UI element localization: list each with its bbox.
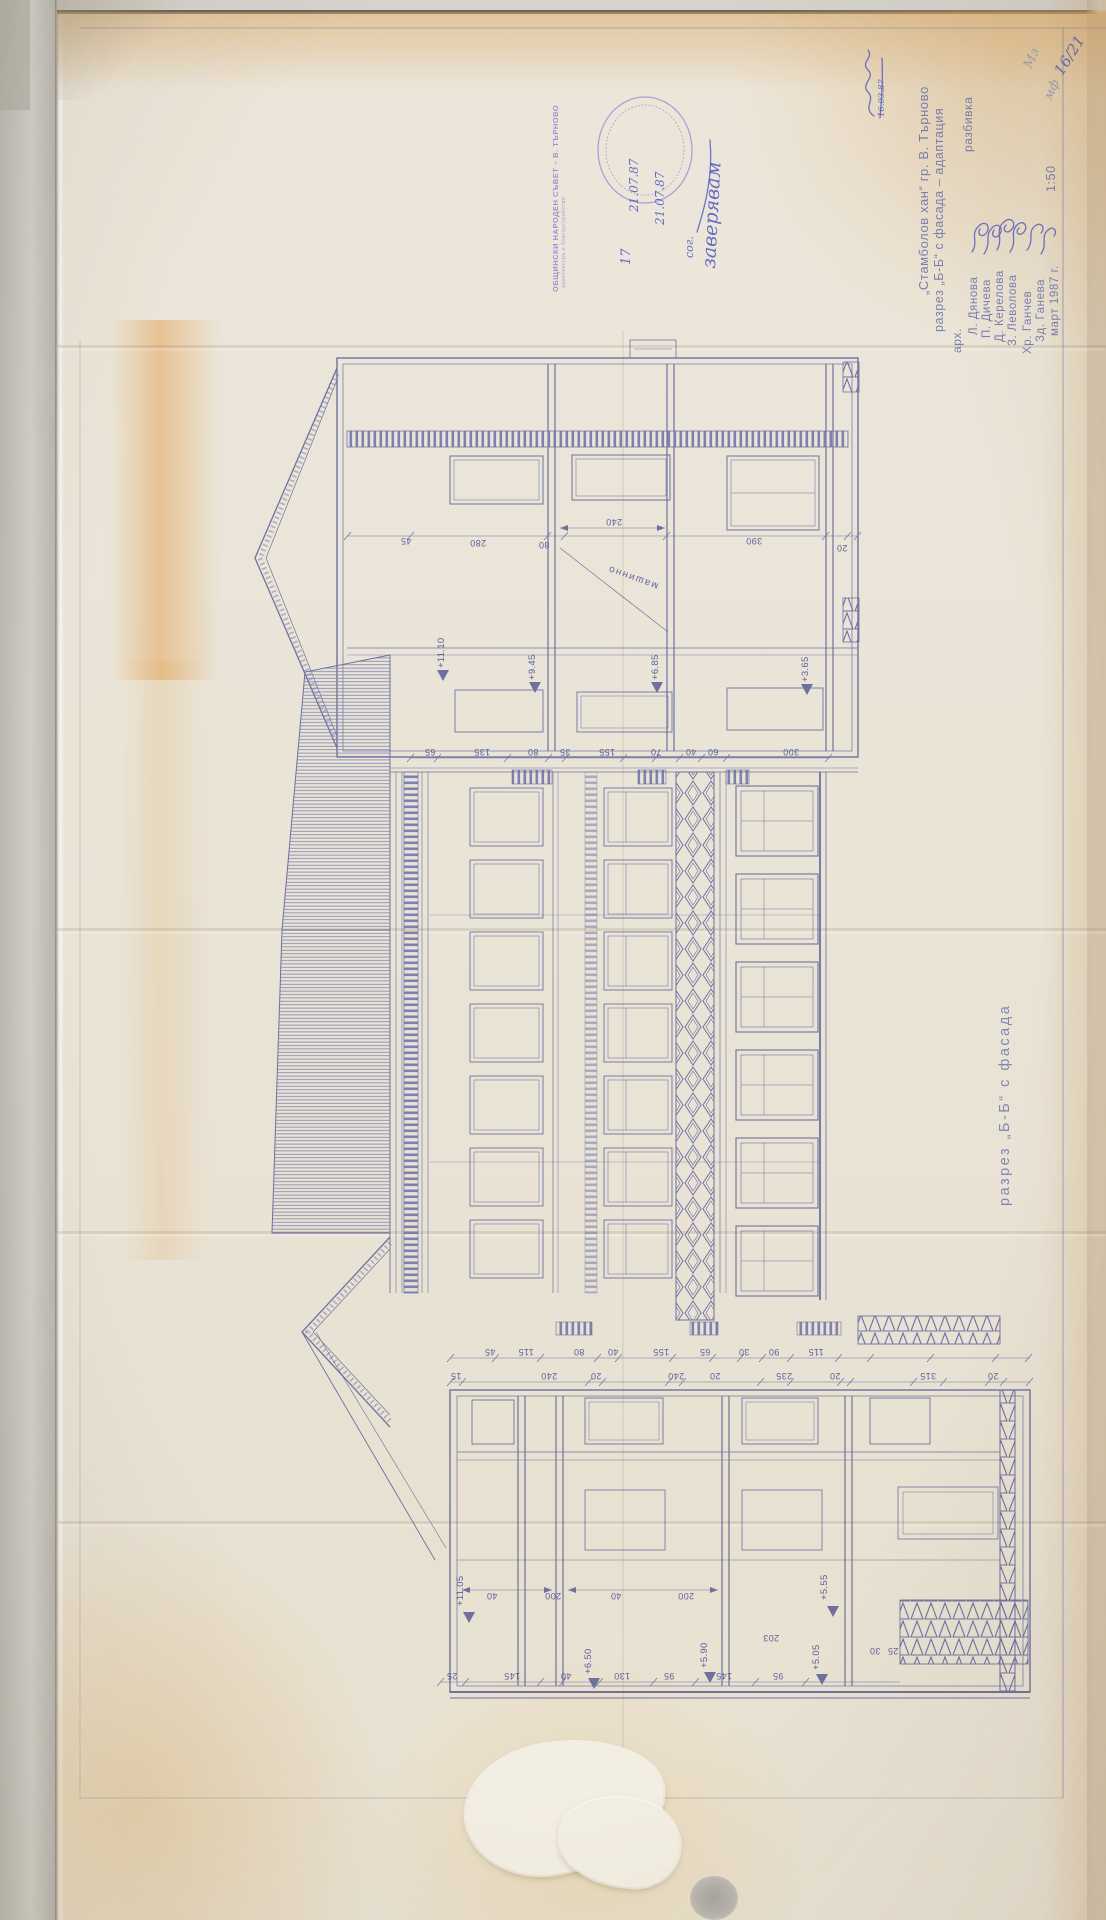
level-label: +3.65 xyxy=(801,656,811,682)
municipal-stamp-line2: архитектура и благоустройство xyxy=(562,197,568,288)
dimension-label: 135 xyxy=(474,747,490,757)
team-label: арх. xyxy=(951,328,963,353)
dimension-label: 25 xyxy=(447,1671,458,1681)
dimension-label: 390 xyxy=(746,536,762,546)
dimension-label: 45 xyxy=(401,536,412,546)
dimension-label: 25 xyxy=(888,1646,899,1656)
dimension-label: 145 xyxy=(716,1671,732,1681)
municipal-stamp-line1: ОБЩИНСКИ НАРОДЕН СЪВЕТ – В. ТЪРНОВО xyxy=(552,105,560,292)
dimension-label: 95 xyxy=(773,1671,784,1681)
stamp-handwritten-number: 17 xyxy=(620,248,633,265)
dimension-label: 203 xyxy=(763,1633,779,1643)
dimension-label: 30 xyxy=(870,1646,881,1656)
stamp-note-small: сог. xyxy=(684,236,695,258)
dimension-label: 240 xyxy=(541,1371,557,1381)
architect-name: П. Дичева xyxy=(982,279,994,338)
dimension-label: 145 xyxy=(504,1671,520,1681)
dimension-label: 235 xyxy=(776,1371,792,1381)
dimension-label: 40 xyxy=(686,747,697,757)
scanned-blueprint-sheet: 16/21 Мз мф 16.03.87 ОБЩИНСКИ НАРОДЕН СЪ… xyxy=(0,0,1106,1920)
level-label: +9.45 xyxy=(528,654,538,680)
dimension-label: 200 xyxy=(678,1591,694,1601)
received-date: 16.03.87 xyxy=(878,79,887,117)
signatory-name: Хр. Ганчев xyxy=(1023,291,1035,354)
scale-label: 1:50 xyxy=(1045,165,1058,192)
dimension-label: 45 xyxy=(485,1347,496,1357)
dimension-label: 65 xyxy=(700,1347,711,1357)
dimension-label: 40 xyxy=(561,1671,572,1681)
dimension-label: 30 xyxy=(739,1347,750,1357)
dimension-label: 315 xyxy=(920,1371,936,1381)
dimension-label: 20 xyxy=(710,1371,721,1381)
dimension-label: 15 xyxy=(451,1371,462,1381)
dimension-label: 155 xyxy=(653,1347,669,1357)
dimension-label: 80 xyxy=(528,747,539,757)
signatory-name: Зд. Ганева xyxy=(1036,279,1048,342)
dimension-label: 240 xyxy=(606,517,622,527)
architect-name: З. Леволова xyxy=(1008,274,1020,346)
level-label: +5.90 xyxy=(700,1642,710,1668)
dimension-label: 155 xyxy=(599,747,615,757)
level-label: +11.05 xyxy=(456,1576,466,1606)
dimension-label: 40 xyxy=(608,1347,619,1357)
architect-name: Д. Керелова xyxy=(995,270,1007,342)
dimension-label: 130 xyxy=(614,1671,630,1681)
stamp-date-2: 21.07.87 xyxy=(654,172,666,225)
dimension-label: 280 xyxy=(470,538,486,548)
dimension-label: 60 xyxy=(708,747,719,757)
dimension-label: 20 xyxy=(830,1371,841,1381)
dimension-label: 70 xyxy=(651,747,662,757)
dimension-label: 20 xyxy=(988,1371,999,1381)
dimension-label: 35 xyxy=(560,747,571,757)
section-title-label: разрез „Б-Б“ с фасада xyxy=(998,1004,1013,1206)
dimension-label: 115 xyxy=(808,1347,824,1357)
level-label: +5.05 xyxy=(812,1644,822,1670)
dimension-label: 90 xyxy=(769,1347,780,1357)
drawing-title: разрез „Б-Б“ с фасада – адаптация xyxy=(933,108,946,332)
dimension-label: 40 xyxy=(611,1591,622,1601)
dimension-label: 20 xyxy=(591,1371,602,1381)
level-label: +5.55 xyxy=(820,1574,830,1600)
dimension-label: 80 xyxy=(539,540,550,550)
paper-hole xyxy=(690,1876,738,1920)
dimension-label: 200 xyxy=(545,1591,561,1601)
level-label: +6.50 xyxy=(584,1648,594,1674)
dimension-label: 115 xyxy=(518,1347,534,1357)
object-title: „Стамболов хан“ гр. В. Търново xyxy=(917,86,930,295)
dimension-label: 80 xyxy=(574,1347,585,1357)
dimension-label: 40 xyxy=(487,1591,498,1601)
level-label: +6.85 xyxy=(651,654,661,680)
level-label: +11.10 xyxy=(437,638,447,668)
stamp-date-1: 21.07.87 xyxy=(628,159,640,212)
dimension-label: 20 xyxy=(837,543,848,553)
architect-name: Л. Дянова xyxy=(969,277,981,335)
dimension-label: 95 xyxy=(664,1671,675,1681)
phase-label: разбивка xyxy=(962,96,974,152)
dimension-label: 65 xyxy=(425,747,436,757)
date-label: март 1987 г. xyxy=(1050,265,1062,336)
dimension-label: 300 xyxy=(783,747,799,757)
dimension-label: 240 xyxy=(668,1371,684,1381)
